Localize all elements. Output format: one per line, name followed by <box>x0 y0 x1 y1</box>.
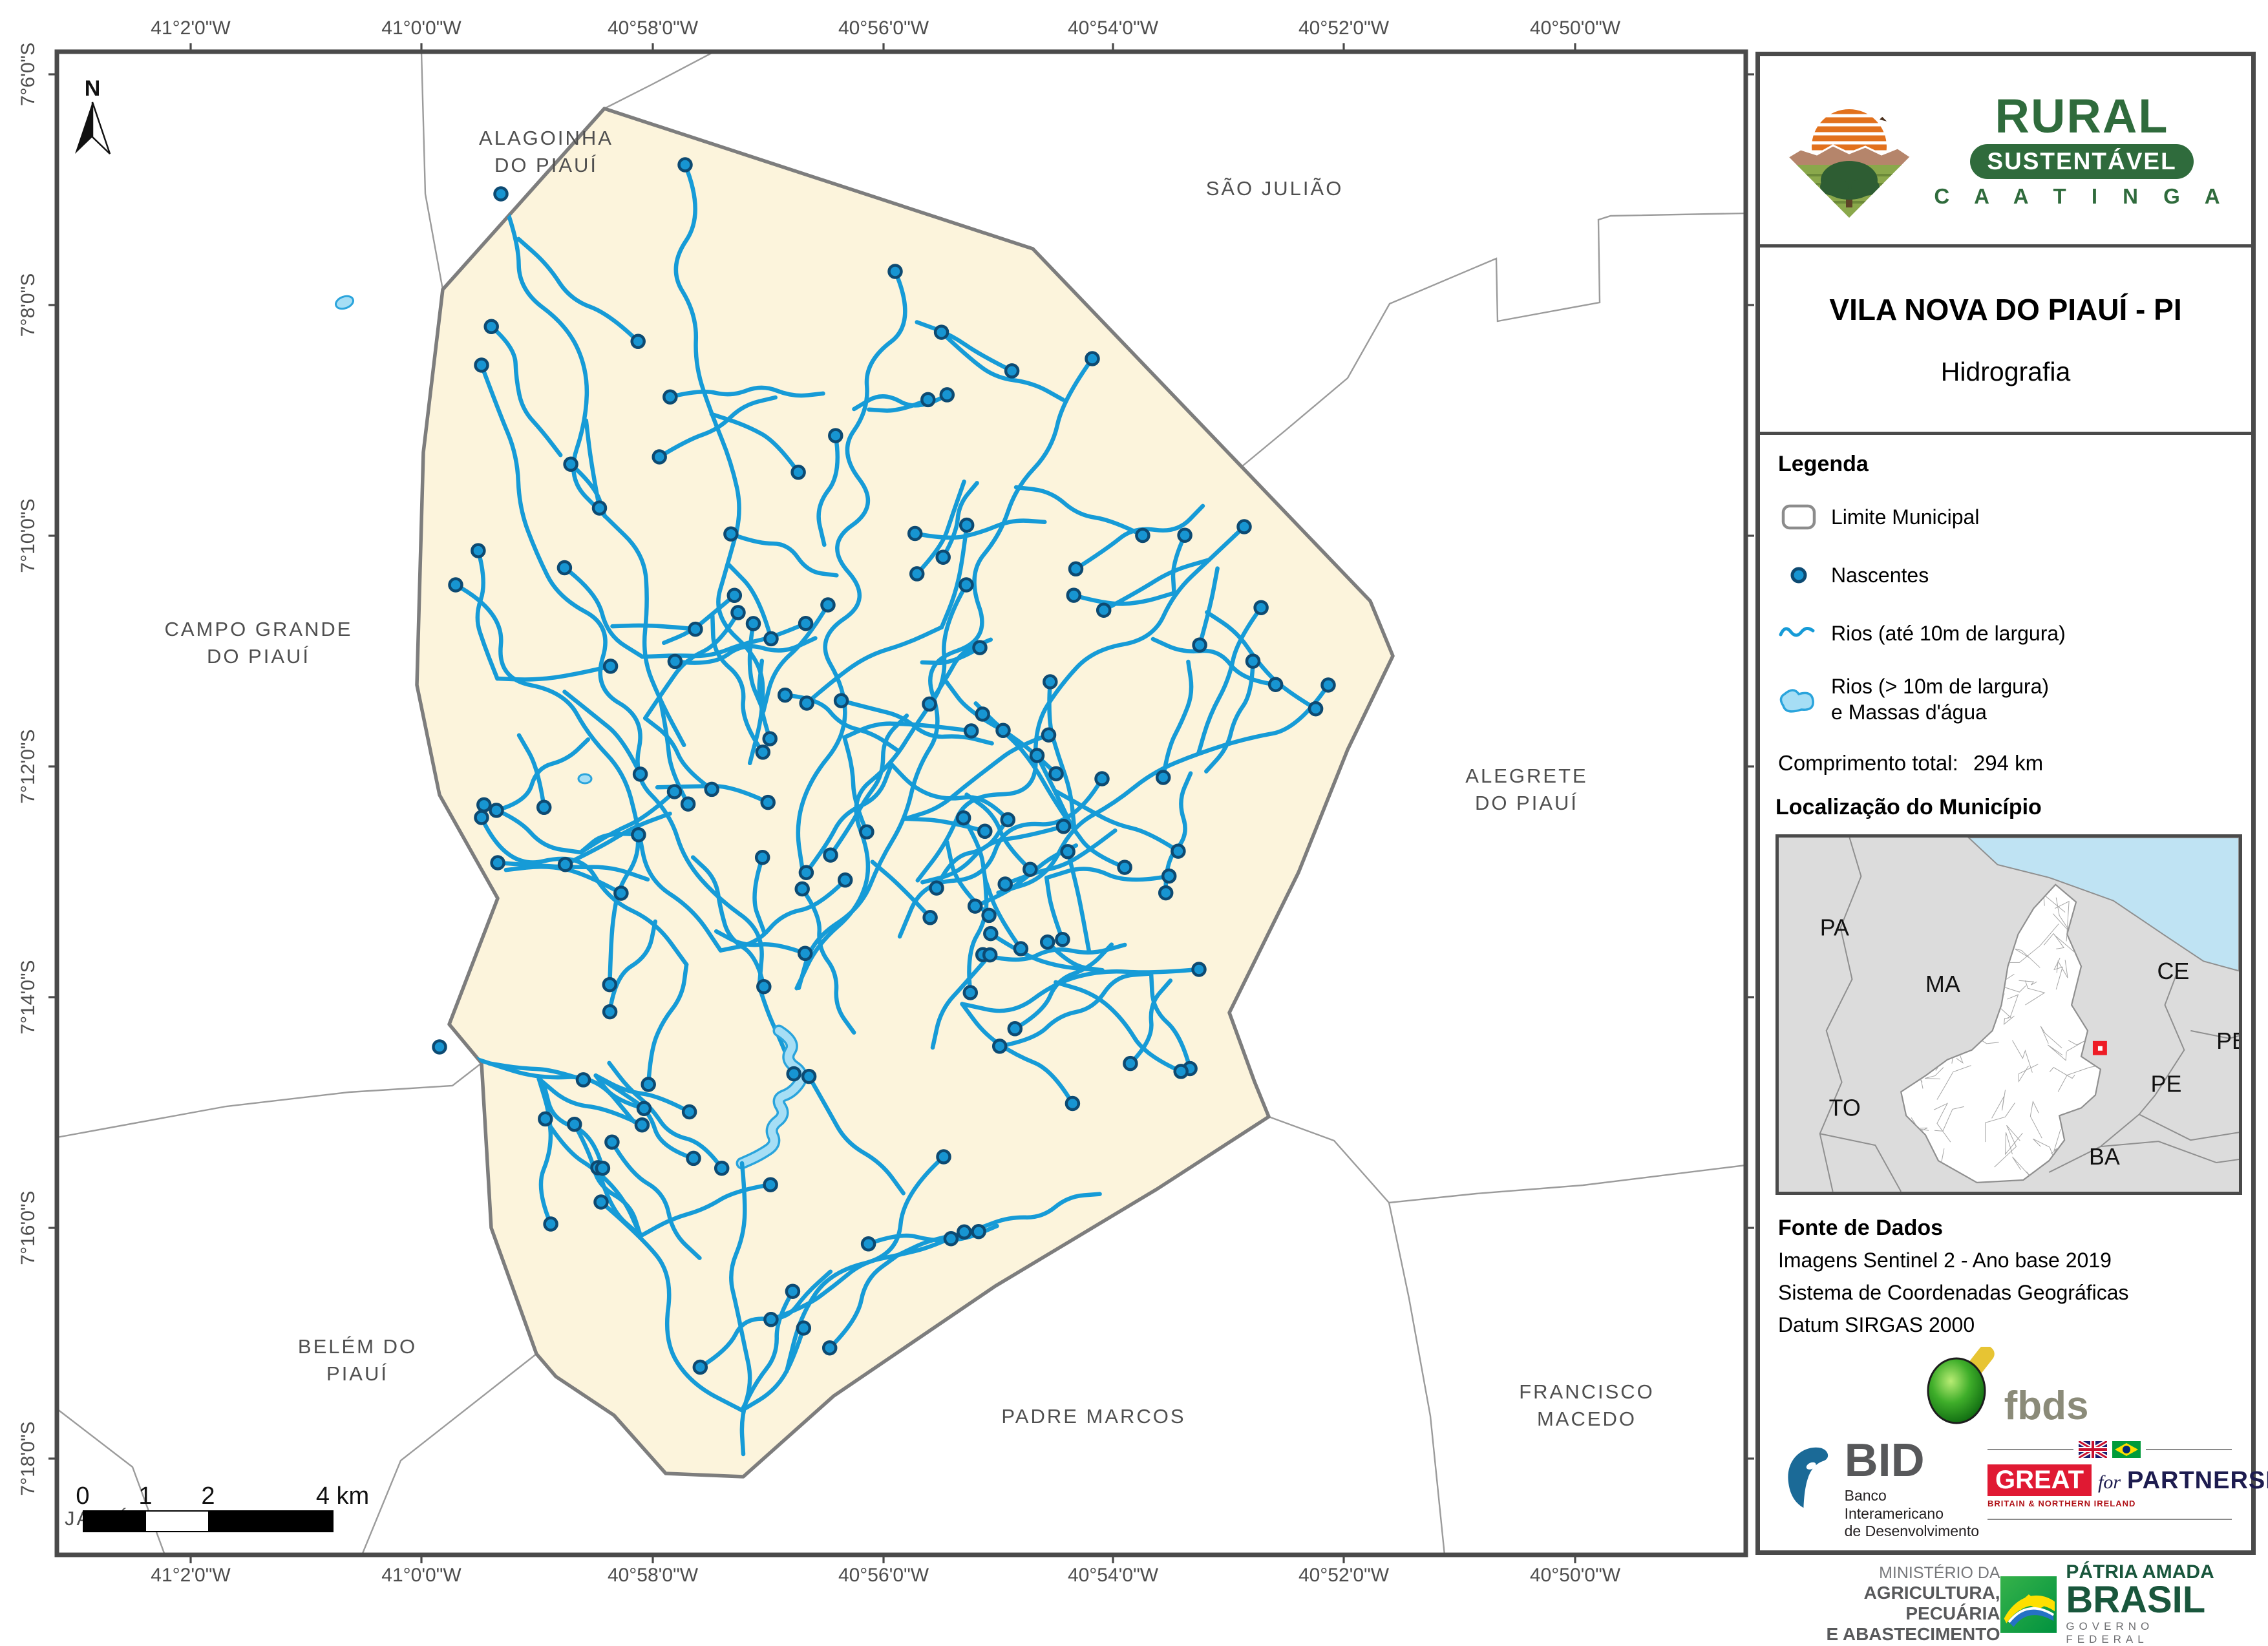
nascente-swatch <box>1792 569 1805 582</box>
nascente-dot <box>1086 353 1099 365</box>
grid-coordinate-label: 41°2'0"W <box>151 1565 230 1587</box>
grid-coordinate-label: 40°50'0"W <box>1530 1565 1620 1587</box>
nascente-dot <box>922 394 934 406</box>
nascente-dot <box>604 1006 616 1018</box>
nascente-dot <box>638 1103 650 1115</box>
nascente-dot <box>1255 602 1267 614</box>
nascente-dot <box>1056 933 1068 945</box>
nascente-dot <box>689 623 701 635</box>
nascente-dot <box>604 978 616 991</box>
pond <box>578 774 591 783</box>
nascente-dot <box>757 746 769 758</box>
nascente-swatch-icon <box>1778 557 1819 593</box>
nascente-dot <box>450 579 462 591</box>
nascente-dot <box>604 660 617 672</box>
divider <box>1987 1449 2073 1450</box>
nascente-dot <box>799 947 811 960</box>
nascente-dot <box>839 874 851 886</box>
grid-coordinate-label: 41°0'0"W <box>381 1565 461 1587</box>
nascente-dot <box>969 900 981 913</box>
nascente-dot <box>1309 702 1322 715</box>
bid-logo: BID Banco Interamericano de Desenvolvime… <box>1779 1441 1987 1541</box>
nascente-dot <box>1068 589 1080 602</box>
limite-swatch <box>1783 506 1814 528</box>
nascente-dot <box>1070 563 1082 575</box>
neighbor-municipality-label: ALEGRETE DO PIAUÍ <box>1465 763 1587 817</box>
nascente-dot <box>889 266 902 278</box>
grid-coordinate-label: 7°18'0"S <box>17 1421 39 1495</box>
neighbor-municipality-label: FRANCISCO MACEDO <box>1519 1378 1655 1433</box>
nascente-dot <box>1269 679 1282 691</box>
nascente-dot <box>476 359 488 372</box>
nascente-dot <box>732 606 745 618</box>
grid-coordinate-label: 40°54'0"W <box>1068 17 1158 39</box>
nascente-dot <box>960 519 973 531</box>
nascente-dot <box>823 1342 836 1354</box>
nascente-dot <box>706 783 718 796</box>
ministry-line3: E ABASTECIMENTO <box>1779 1624 2000 1645</box>
grid-coordinate-label: 41°2'0"W <box>151 17 230 39</box>
data-source-lines: Imagens Sentinel 2 - Ano base 2019Sistem… <box>1778 1247 2233 1338</box>
rural-sustentavel-diamond-icon <box>1781 82 1917 219</box>
nascente-dot <box>632 828 644 841</box>
grid-coordinate-label: 40°56'0"W <box>838 17 929 39</box>
nascente-dot <box>1119 861 1131 874</box>
grid-coordinate-label: 40°52'0"W <box>1298 17 1389 39</box>
nascente-dot <box>765 633 778 645</box>
partnership-wordmark: PARTNERSHIP <box>2127 1467 2268 1495</box>
nascente-dot <box>538 801 550 814</box>
scale-bar-segment <box>146 1512 208 1531</box>
grid-coordinate-label: 40°58'0"W <box>608 17 698 39</box>
uk-flag-icon <box>2079 1441 2107 1458</box>
bid-subtitle-line1: Banco Interamericano <box>1845 1487 1987 1523</box>
nascente-dot <box>632 335 644 348</box>
nascente-dot <box>997 724 1010 737</box>
legend-item-label: Nascentes <box>1831 562 1929 588</box>
nascente-dot <box>679 159 692 171</box>
nascente-dot <box>642 1079 655 1091</box>
grid-coordinate-label: 7°8'0"S <box>17 273 39 337</box>
nascente-dot <box>728 589 741 602</box>
grid-coordinate-label: 7°6'0"S <box>17 43 39 106</box>
nascente-dot <box>999 878 1012 891</box>
nascente-dot <box>478 799 490 811</box>
divider <box>1987 1519 2232 1520</box>
inset-state-label: PB <box>2216 1028 2242 1054</box>
partners-row: BID Banco Interamericano de Desenvolvime… <box>1779 1441 2232 1541</box>
nascente-dot <box>977 708 989 721</box>
nascente-dot <box>1322 679 1335 691</box>
bid-swoosh-icon <box>1779 1441 1834 1514</box>
data-source-line: Sistema de Coordenadas Geográficas <box>1778 1280 2233 1305</box>
nascente-dot <box>800 617 812 629</box>
nascente-dot <box>862 1238 874 1250</box>
inset-state-label: PE <box>2151 1071 2182 1097</box>
nascente-dot <box>958 1226 970 1238</box>
ministry-line1: MINISTÉRIO DA <box>1779 1564 2000 1583</box>
nascente-dot <box>715 1162 728 1174</box>
nascente-dot <box>964 987 977 999</box>
location-section: Localização do Município PAMACEPBPETOBA <box>1760 776 2251 1195</box>
map-title-box: VILA NOVA DO PIAUÍ - PI Hidrografia <box>1760 248 2251 435</box>
brasil-flag-mark-icon <box>2000 1574 2057 1635</box>
massa-legend-icon <box>1778 681 1819 717</box>
nascente-dot <box>1024 863 1036 876</box>
nascente-dot <box>1015 943 1027 955</box>
total-length-label: Comprimento total: <box>1778 751 1958 775</box>
great-wordmark-row: GREAT for PARTNERSHIP <box>1987 1464 2232 1496</box>
nascente-dot <box>1043 729 1055 741</box>
nascente-dot <box>434 1041 446 1053</box>
divider <box>2146 1449 2232 1450</box>
nascente-dot <box>1006 364 1018 377</box>
nascente-dot <box>937 551 949 564</box>
great-for: for <box>2098 1472 2121 1493</box>
nascente-dot <box>495 188 507 200</box>
nascente-dot <box>779 689 791 701</box>
legend-item: Nascentes <box>1778 557 2233 593</box>
nascente-dot <box>491 804 503 816</box>
nascente-dot <box>485 321 498 333</box>
nascente-dot <box>938 1151 950 1163</box>
nascente-dot <box>960 579 973 591</box>
data-source-line: Datum SIRGAS 2000 <box>1778 1312 2233 1338</box>
nascente-dot <box>1041 936 1054 948</box>
nascente-dot <box>792 466 805 478</box>
legend-section: Legenda Limite MunicipalNascentesRios (a… <box>1760 435 2251 776</box>
grid-coordinate-label: 41°0'0"W <box>381 17 461 39</box>
nascente-legend-icon <box>1778 557 1819 593</box>
nascente-dot <box>835 695 847 707</box>
nascente-dot <box>615 887 627 900</box>
map-subtitle: Hidrografia <box>1941 357 2071 387</box>
nascente-dot <box>979 825 991 838</box>
grid-coordinate-label: 40°56'0"W <box>838 1565 929 1587</box>
location-heading: Localização do Município <box>1775 795 2236 820</box>
nascente-dot <box>957 812 970 824</box>
nascente-dot <box>1009 1022 1021 1035</box>
nascente-dot <box>653 451 666 463</box>
legend-item: Rios (> 10m de largura) e Massas d'água <box>1778 673 2233 725</box>
sidebar: RURAL SUSTENTÁVEL C A A T I N G A VILA N… <box>1755 52 2256 1555</box>
nascente-dot <box>765 1313 777 1325</box>
bid-wordmark: BID <box>1845 1441 1987 1481</box>
nascente-dot <box>634 768 646 780</box>
nascente-dot <box>1066 1097 1079 1110</box>
nascente-dot <box>756 851 768 863</box>
nascente-dot <box>909 527 921 540</box>
fbds-wordmark: fbds <box>2004 1388 2089 1424</box>
neighbor-municipality-label: CAMPO GRANDE DO PIAUÍ <box>165 616 353 670</box>
nascente-dot <box>1175 1065 1187 1077</box>
neighbor-municipality-label: BELÉM DO PIAUÍ <box>298 1333 417 1387</box>
nascente-dot <box>829 430 842 442</box>
fbds-logo: fbds <box>1779 1347 2232 1424</box>
legend-item-label: Limite Municipal <box>1831 504 1979 530</box>
grid-coordinate-label: 40°50'0"W <box>1530 17 1620 39</box>
nascente-dot <box>669 655 681 668</box>
nascente-dot <box>683 1106 695 1118</box>
nascente-dot <box>492 857 504 869</box>
flag-row <box>1987 1441 2232 1458</box>
nascente-dot <box>973 1225 985 1238</box>
nascente-dot <box>682 798 694 810</box>
nascente-dot <box>931 882 943 894</box>
nascente-dot <box>924 698 936 710</box>
nascente-dot <box>801 697 813 710</box>
nascente-dot <box>1124 1057 1136 1070</box>
great-partnership-logo: GREAT for PARTNERSHIP BRITAIN & NORTHERN… <box>1987 1441 2232 1520</box>
limite-swatch-icon <box>1778 499 1819 535</box>
nascente-dot <box>577 1073 589 1086</box>
inset-state-label: MA <box>1925 971 1960 997</box>
nascente-dot <box>798 1322 810 1335</box>
program-logo: RURAL SUSTENTÁVEL C A A T I N G A <box>1760 56 2251 248</box>
data-source-heading: Fonte de Dados <box>1778 1216 2233 1241</box>
data-source-section: Fonte de Dados Imagens Sentinel 2 - Ano … <box>1760 1195 2251 1338</box>
massa-swatch <box>1781 690 1813 712</box>
nascente-dot <box>800 867 812 879</box>
nascente-dot <box>606 1136 618 1148</box>
legend-item: Limite Municipal <box>1778 499 2233 535</box>
grid-coordinate-label: 40°58'0"W <box>608 1565 698 1587</box>
nascente-dot <box>668 786 681 798</box>
nascente-dot <box>825 849 837 861</box>
nascente-dot <box>1157 772 1169 784</box>
nascente-dot <box>1096 773 1108 785</box>
fbds-globe-icon <box>1923 1347 2000 1424</box>
inset-state-label: PA <box>1820 915 1849 941</box>
inset-location-marker-center <box>2098 1046 2103 1051</box>
great-wordmark: GREAT <box>1987 1464 2092 1496</box>
nascente-dot <box>559 858 571 870</box>
scale-bar-tick-label: 4 km <box>316 1482 369 1510</box>
scale-bar-segment <box>84 1512 146 1531</box>
bid-subtitle-line2: de Desenvolvimento <box>1845 1523 1987 1541</box>
rio-swatch-icon <box>1778 615 1819 651</box>
logo-word-caatinga: C A A T I N G A <box>1934 184 2229 209</box>
rio-swatch <box>1781 628 1813 635</box>
scale-bar-tick-label: 0 <box>76 1482 89 1510</box>
nascente-dot <box>796 883 809 895</box>
logo-pill: SUSTENTÁVEL <box>1970 144 2193 179</box>
legend-heading: Legenda <box>1778 452 2233 477</box>
nascente-dot <box>984 949 996 961</box>
nascente-dot <box>747 617 759 629</box>
scale-bar-tick-label: 2 <box>201 1482 215 1510</box>
scale-bar <box>83 1510 334 1532</box>
nascente-dot <box>965 725 977 737</box>
nascente-dot <box>764 733 776 745</box>
nascente-dot <box>1172 845 1184 858</box>
nascente-dot <box>1002 814 1014 826</box>
nascente-dot <box>472 545 484 557</box>
nascente-dot <box>1044 676 1056 688</box>
great-small-text: BRITAIN & NORTHERN IRELAND <box>1987 1499 2232 1508</box>
neighbor-municipality-label: SÃO JULIÃO <box>1206 175 1344 202</box>
nascente-dot <box>993 1040 1006 1052</box>
grid-coordinate-label: 7°16'0"S <box>17 1190 39 1265</box>
north-arrow-label: N <box>85 76 101 101</box>
nascente-dot <box>788 1068 800 1080</box>
nascente-dot <box>636 1119 648 1131</box>
grid-coordinate-label: 7°14'0"S <box>17 960 39 1034</box>
nascente-dot <box>1163 870 1175 882</box>
nascente-dot <box>860 826 873 838</box>
nascente-dot <box>758 980 770 993</box>
state-location-inset-map: PAMACEPBPETOBA <box>1775 834 2242 1195</box>
rio-legend-icon <box>1778 615 1819 651</box>
nascente-dot <box>941 388 953 401</box>
nascente-dot <box>664 391 676 403</box>
scale-bar-tick-label: 1 <box>138 1482 152 1510</box>
nascente-dot <box>983 909 995 922</box>
nascente-dot <box>595 1196 608 1208</box>
nascente-dot <box>1193 964 1205 976</box>
inset-state-label: TO <box>1829 1095 1861 1121</box>
neighbor-municipality-label: PADRE MARCOS <box>1001 1403 1185 1430</box>
nascente-dot <box>539 1113 551 1125</box>
program-logo-text: RURAL SUSTENTÁVEL C A A T I N G A <box>1934 92 2229 209</box>
nascente-dot <box>597 1162 609 1174</box>
nascente-dot <box>1238 521 1251 533</box>
nascente-dot <box>568 1118 580 1130</box>
nascente-dot <box>762 796 774 808</box>
nascente-dot <box>1057 820 1070 832</box>
grid-coordinate-label: 40°54'0"W <box>1068 1565 1158 1587</box>
nascente-dot <box>974 642 986 654</box>
nascente-dot <box>924 911 937 923</box>
nascente-dot <box>1247 655 1259 668</box>
nascente-dot <box>787 1285 799 1298</box>
nascente-dot <box>1194 639 1206 651</box>
inset-state-label: CE <box>2157 958 2190 984</box>
nascente-dot <box>765 1179 777 1191</box>
grid-coordinate-label: 7°10'0"S <box>17 498 39 573</box>
nascente-dot <box>476 812 488 824</box>
nascente-dot <box>984 927 997 940</box>
legend-items: Limite MunicipalNascentesRios (até 10m d… <box>1778 499 2233 725</box>
nascente-dot <box>545 1218 557 1230</box>
nascente-dot <box>1179 529 1191 542</box>
nascente-dot <box>593 502 606 514</box>
nascente-dot <box>822 599 834 611</box>
nascente-dot <box>1136 529 1149 542</box>
scale-bar-segment <box>208 1512 332 1531</box>
brazil-flag-icon <box>2112 1441 2141 1458</box>
nascente-dot <box>694 1361 706 1373</box>
partner-logos-section: fbds BID Banco Interamericano de Desenvo… <box>1760 1338 2251 1646</box>
grid-coordinate-label: 40°52'0"W <box>1298 1565 1389 1587</box>
nascente-dot <box>803 1070 815 1082</box>
grid-coordinate-label: 7°12'0"S <box>17 729 39 803</box>
brasil-line2: BRASIL <box>2066 1582 2232 1618</box>
brasil-line3: GOVERNO FEDERAL <box>2066 1620 2232 1646</box>
total-length-row: Comprimento total: 294 km <box>1778 751 2233 776</box>
nascente-dot <box>911 567 923 580</box>
logo-word-sustentavel: SUSTENTÁVEL <box>1987 148 2176 174</box>
nascente-dot <box>1097 604 1110 617</box>
government-row: MINISTÉRIO DA AGRICULTURA, PECUÁRIA E AB… <box>1779 1563 2232 1646</box>
legend-item: Rios (até 10m de largura) <box>1778 615 2233 651</box>
nascente-dot <box>688 1152 700 1165</box>
legend-item-label: Rios (> 10m de largura) e Massas d'água <box>1831 673 2049 725</box>
nascente-dot <box>1050 768 1063 780</box>
data-source-line: Imagens Sentinel 2 - Ano base 2019 <box>1778 1247 2233 1273</box>
total-length-value: 294 km <box>1973 751 2043 775</box>
nascente-dot <box>945 1232 957 1245</box>
legend-item-label: Rios (até 10m de largura) <box>1831 620 2066 646</box>
nascente-dot <box>1160 887 1172 899</box>
nascente-dot <box>1031 750 1043 762</box>
nascente-dot <box>725 528 737 540</box>
neighbor-municipality-label: ALAGOINHA DO PIAUÍ <box>479 125 613 179</box>
ministry-logo-text: MINISTÉRIO DA AGRICULTURA, PECUÁRIA E AB… <box>1779 1564 2000 1645</box>
limite-legend-icon <box>1778 499 1819 535</box>
logo-word-rural: RURAL <box>1995 92 2169 140</box>
patria-amada-brasil-logo: PÁTRIA AMADA BRASIL GOVERNO FEDERAL <box>2000 1563 2232 1646</box>
nascente-dot <box>558 562 571 574</box>
inset-state-label: BA <box>2089 1144 2120 1170</box>
nascente-dot <box>935 326 948 339</box>
nascente-dot <box>565 458 577 470</box>
nascente-dot <box>1062 845 1074 858</box>
massa-swatch-icon <box>1778 681 1819 717</box>
map-title: VILA NOVA DO PIAUÍ - PI <box>1829 292 2181 327</box>
